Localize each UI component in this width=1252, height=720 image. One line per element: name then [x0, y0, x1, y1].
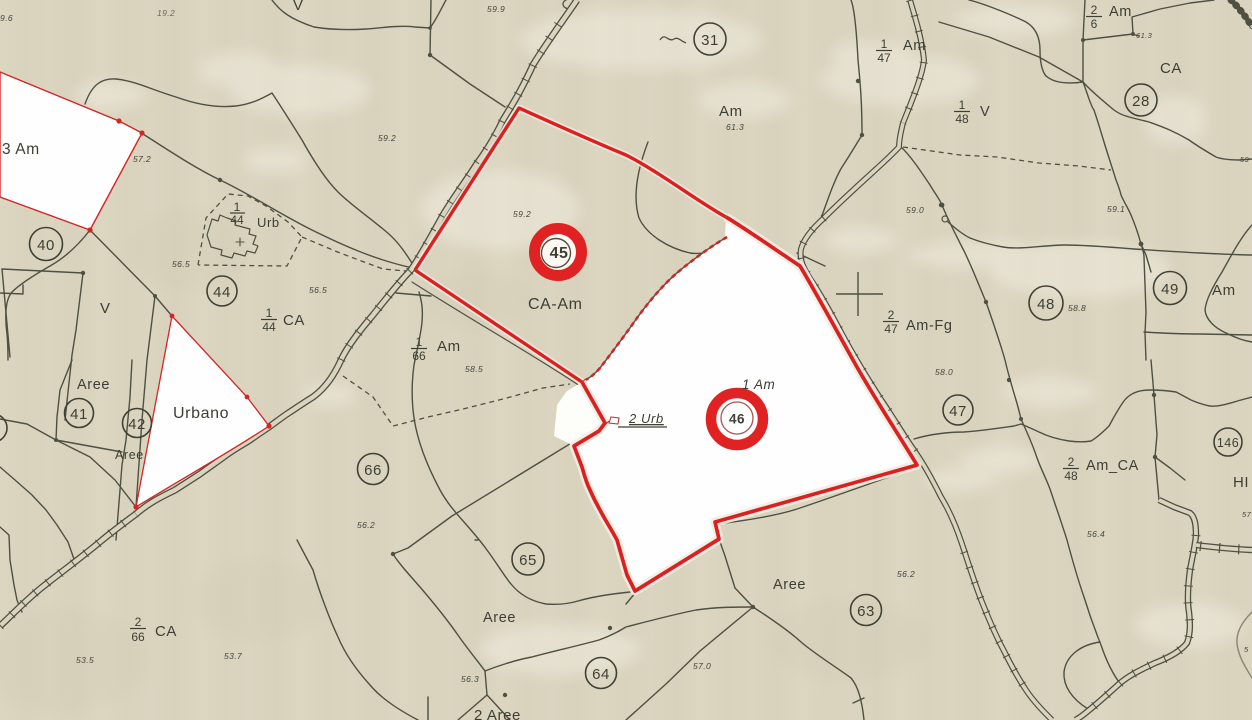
svg-text:61.3: 61.3	[1136, 31, 1153, 40]
svg-text:57.0: 57.0	[693, 661, 711, 671]
svg-text:47: 47	[949, 403, 967, 420]
svg-text:48: 48	[1064, 469, 1078, 483]
svg-text:41: 41	[70, 406, 88, 423]
svg-text:40: 40	[37, 237, 55, 254]
svg-text:31: 31	[701, 32, 719, 49]
svg-text:1: 1	[881, 37, 888, 51]
svg-text:59.0: 59.0	[906, 205, 924, 215]
svg-text:59: 59	[1240, 155, 1250, 164]
svg-text:2 Aree: 2 Aree	[474, 707, 521, 720]
svg-text:48: 48	[1037, 296, 1055, 313]
svg-text:1: 1	[266, 306, 273, 320]
svg-text:56.3: 56.3	[461, 674, 479, 684]
svg-text:49: 49	[1161, 281, 1179, 298]
svg-text:58.5: 58.5	[465, 364, 483, 374]
svg-text:2: 2	[135, 615, 142, 629]
svg-text:V: V	[980, 104, 990, 120]
svg-text:Aree: Aree	[77, 377, 110, 393]
svg-text:Am: Am	[437, 338, 461, 355]
svg-text:Am_CA: Am_CA	[1086, 458, 1139, 474]
svg-text:CA-Am: CA-Am	[528, 296, 583, 313]
svg-text:59.9: 59.9	[487, 4, 505, 14]
svg-text:63: 63	[857, 603, 875, 620]
svg-text:56.2: 56.2	[357, 520, 375, 530]
svg-text:59.2: 59.2	[378, 133, 396, 143]
svg-text:44: 44	[213, 284, 231, 301]
svg-text:1: 1	[416, 335, 423, 349]
svg-text:44: 44	[262, 320, 276, 334]
svg-text:Am: Am	[1212, 282, 1236, 299]
svg-text:58.8: 58.8	[1068, 303, 1086, 313]
svg-text:66: 66	[131, 630, 145, 644]
svg-text:Am: Am	[719, 103, 743, 120]
svg-text:Aree: Aree	[773, 577, 806, 593]
svg-text:2: 2	[1091, 3, 1098, 17]
svg-text:6: 6	[1091, 17, 1098, 31]
svg-text:59.2: 59.2	[513, 209, 531, 219]
svg-text:66: 66	[412, 349, 426, 363]
svg-text:CA: CA	[283, 312, 305, 329]
svg-text:Aree: Aree	[483, 610, 516, 626]
svg-text:64: 64	[592, 666, 610, 683]
svg-text:V: V	[293, 0, 304, 14]
svg-text:1: 1	[234, 200, 241, 214]
svg-text:66: 66	[364, 462, 382, 479]
svg-text:53.5: 53.5	[76, 655, 94, 665]
svg-text:59.1: 59.1	[1107, 204, 1125, 214]
svg-text:61.3: 61.3	[726, 122, 744, 132]
svg-text:57: 57	[1242, 510, 1252, 519]
svg-text:56.5: 56.5	[309, 285, 327, 295]
svg-text:5: 5	[1244, 645, 1249, 654]
svg-text:53.7: 53.7	[224, 651, 242, 661]
svg-text:45: 45	[550, 245, 569, 262]
svg-text:Aree: Aree	[115, 448, 144, 462]
svg-text:56.2: 56.2	[897, 569, 915, 579]
svg-text:65: 65	[519, 552, 537, 569]
svg-text:2: 2	[888, 308, 895, 322]
svg-text:CA: CA	[155, 623, 177, 640]
svg-text:Urbano: Urbano	[173, 405, 229, 422]
svg-text:46: 46	[729, 412, 745, 427]
svg-text:56.5: 56.5	[172, 259, 190, 269]
svg-text:3 Am: 3 Am	[2, 141, 40, 158]
svg-text:1 Am: 1 Am	[742, 377, 775, 392]
svg-text:47: 47	[877, 51, 891, 65]
svg-text:44: 44	[230, 213, 244, 227]
svg-text:57.2: 57.2	[133, 154, 151, 164]
svg-text:47: 47	[884, 322, 898, 336]
svg-text:19.2: 19.2	[157, 8, 175, 18]
svg-text:1: 1	[959, 98, 966, 112]
svg-text:V: V	[100, 300, 111, 317]
svg-text:56.4: 56.4	[1087, 529, 1105, 539]
svg-text:28: 28	[1132, 93, 1150, 110]
svg-text:Am: Am	[1109, 4, 1132, 20]
svg-text:HI: HI	[1233, 474, 1249, 491]
svg-text:146: 146	[1217, 436, 1239, 450]
svg-text:CA: CA	[1160, 60, 1182, 77]
svg-text:48: 48	[955, 112, 969, 126]
svg-text:2 Urb: 2 Urb	[628, 411, 664, 426]
svg-text:Am-Fg: Am-Fg	[906, 318, 953, 334]
svg-text:58.0: 58.0	[935, 367, 953, 377]
svg-text:42: 42	[128, 416, 146, 433]
svg-text:9.6: 9.6	[0, 13, 13, 23]
svg-text:2: 2	[1068, 455, 1075, 469]
svg-text:Urb: Urb	[257, 215, 280, 230]
svg-text:Am: Am	[903, 38, 926, 54]
